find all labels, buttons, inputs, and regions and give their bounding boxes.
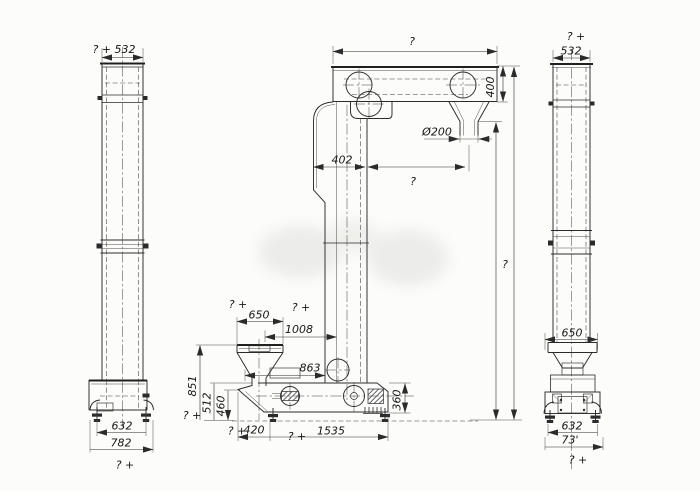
left-boot xyxy=(89,380,154,422)
note-left-bottom: ? + xyxy=(116,459,135,472)
dim-right-base-outer: 73' xyxy=(561,434,578,447)
dim-left-base-outer: 782 xyxy=(111,437,132,450)
dim-right-base-inner: 632 xyxy=(562,420,583,433)
feed-hopper xyxy=(237,339,283,420)
right-boot xyxy=(544,343,602,424)
drawing-canvas: ? + 532 632 782 ? + ? 400 Ø200 402 ? ? ?… xyxy=(0,0,700,491)
right-view xyxy=(544,49,603,470)
dim-front-top-width: ? xyxy=(409,35,415,48)
dim-base-left: 420 xyxy=(244,424,265,437)
inspection-door xyxy=(270,368,300,378)
dim-hopper-height: 851 xyxy=(186,376,199,397)
boot-section xyxy=(238,358,414,423)
scan-watermark xyxy=(258,220,448,286)
dim-leg-to-spout: ? xyxy=(410,175,416,188)
technical-drawing: ? + 532 632 782 ? + ? 400 Ø200 402 ? ? ?… xyxy=(0,0,700,491)
dim-leg-width: 402 xyxy=(332,154,353,167)
dim-head-height: 400 xyxy=(484,77,497,98)
dim-left-base-inner: 632 xyxy=(112,420,133,433)
dim-boot-top-height: 460 xyxy=(215,396,228,417)
dim-lip-height: 512 xyxy=(201,393,214,414)
note-offset: ? + xyxy=(292,301,311,314)
left-view xyxy=(89,47,154,453)
note-span: ? + xyxy=(288,430,307,443)
dim-boot-height: 360 xyxy=(391,390,404,411)
note-hopper: ? + xyxy=(229,298,248,311)
dim-hopper-width: 650 xyxy=(249,309,270,322)
dim-overall-height: ? xyxy=(502,258,508,271)
left-column xyxy=(97,47,149,427)
head-section xyxy=(331,67,499,120)
dim-offset: 1008 xyxy=(285,323,313,336)
note-ground: ? + xyxy=(183,409,202,422)
dim-spout-diameter: Ø200 xyxy=(421,126,452,139)
note-right-top: ? + xyxy=(567,30,586,43)
dim-span: 1535 xyxy=(317,425,345,438)
dim-right-top-width: 532 xyxy=(561,45,582,58)
note-right-bottom: ? + xyxy=(569,454,588,467)
dim-right-boot-width: 650 xyxy=(562,327,583,340)
dim-hopper-to-leg: 863 xyxy=(300,362,321,375)
right-column xyxy=(548,49,595,470)
dim-left-top-width: ? + 532 xyxy=(92,43,135,56)
